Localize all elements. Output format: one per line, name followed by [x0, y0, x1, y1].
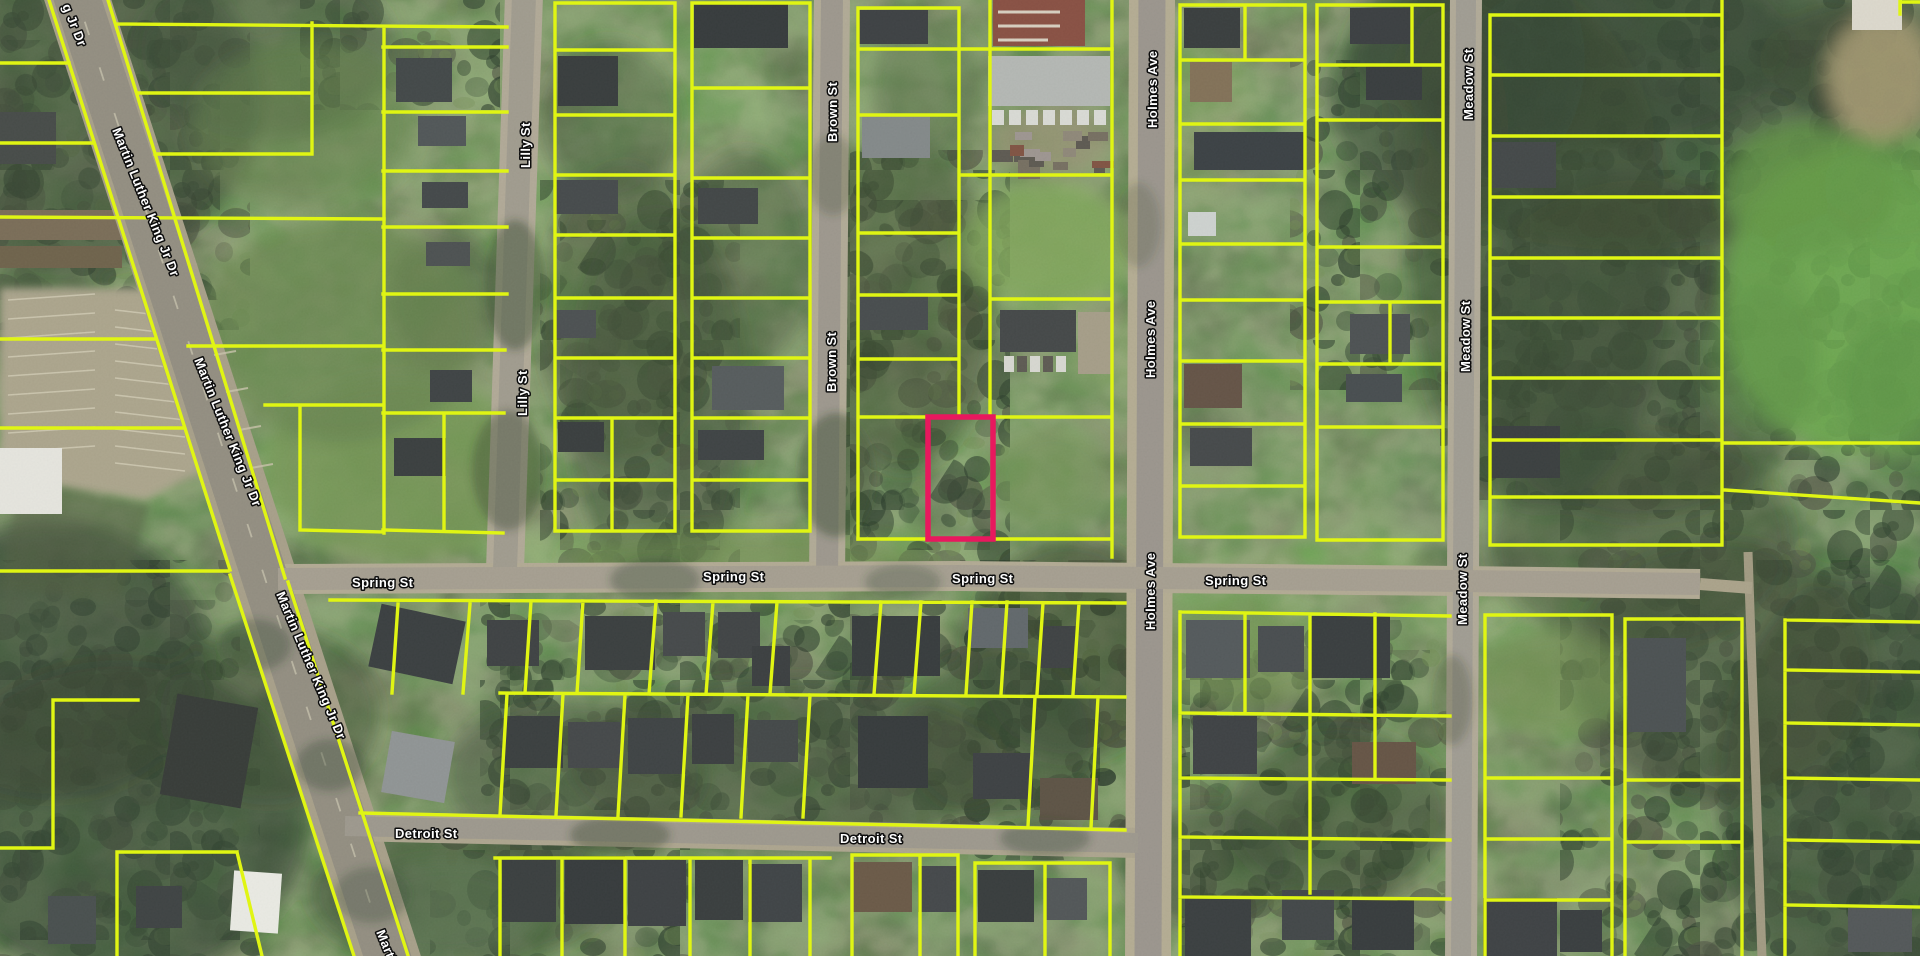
svg-text:Holmes Ave: Holmes Ave	[1143, 301, 1158, 378]
svg-text:Spring St: Spring St	[352, 575, 414, 590]
svg-text:Spring St: Spring St	[1205, 573, 1267, 588]
svg-text:Brown St: Brown St	[824, 331, 839, 392]
svg-text:Meadow St: Meadow St	[1461, 48, 1476, 120]
svg-text:Spring St: Spring St	[703, 569, 765, 584]
svg-text:Brown St: Brown St	[825, 81, 840, 142]
svg-text:Detroit St: Detroit St	[840, 831, 903, 846]
svg-text:Holmes Ave: Holmes Ave	[1145, 51, 1160, 128]
svg-text:Meadow St: Meadow St	[1455, 553, 1470, 625]
svg-text:Detroit St: Detroit St	[395, 826, 458, 841]
svg-text:Holmes Ave: Holmes Ave	[1143, 553, 1158, 630]
svg-text:Spring St: Spring St	[952, 571, 1014, 586]
svg-text:Lilly St: Lilly St	[518, 122, 533, 168]
svg-text:Meadow St: Meadow St	[1458, 300, 1473, 372]
svg-text:Lilly St: Lilly St	[515, 370, 530, 416]
